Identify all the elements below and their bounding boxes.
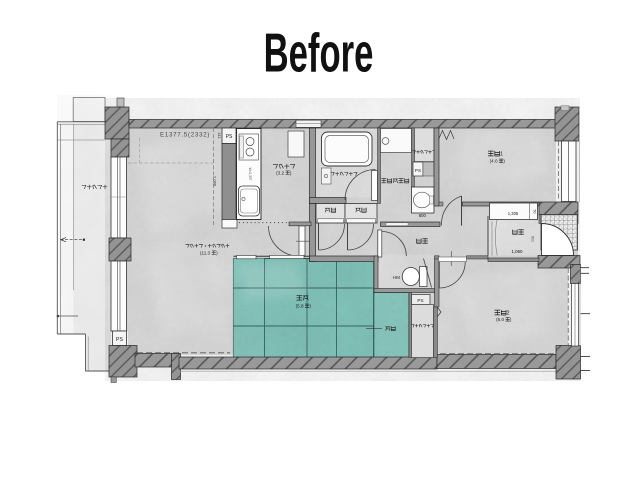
svg-text:(4.0: (4.0 bbox=[490, 158, 498, 163]
svg-text:1: 1 bbox=[500, 152, 503, 158]
svg-text:1,305: 1,305 bbox=[508, 211, 519, 216]
svg-text:HM: HM bbox=[393, 275, 400, 280]
svg-text:PS: PS bbox=[417, 298, 423, 303]
svg-text:PS: PS bbox=[415, 168, 421, 173]
svg-text:411: 411 bbox=[217, 132, 222, 139]
svg-text:(6.0: (6.0 bbox=[496, 317, 504, 322]
svg-text:2: 2 bbox=[507, 311, 510, 317]
svg-text:(5.8: (5.8 bbox=[296, 303, 304, 308]
svg-text:(3.2: (3.2 bbox=[276, 170, 284, 175]
svg-text:Before: Before bbox=[264, 21, 374, 83]
svg-text:E1377.5(2332): E1377.5(2332) bbox=[160, 132, 210, 139]
svg-text:(11.3: (11.3 bbox=[200, 250, 211, 255]
svg-text:PS: PS bbox=[226, 134, 233, 140]
svg-text:1,060: 1,060 bbox=[512, 249, 524, 254]
svg-text:50: 50 bbox=[533, 210, 537, 214]
svg-text:PS: PS bbox=[116, 337, 123, 343]
svg-text:900: 900 bbox=[531, 236, 535, 242]
svg-text:600: 600 bbox=[419, 213, 427, 218]
svg-text:W=2,337: W=2,337 bbox=[248, 168, 252, 181]
